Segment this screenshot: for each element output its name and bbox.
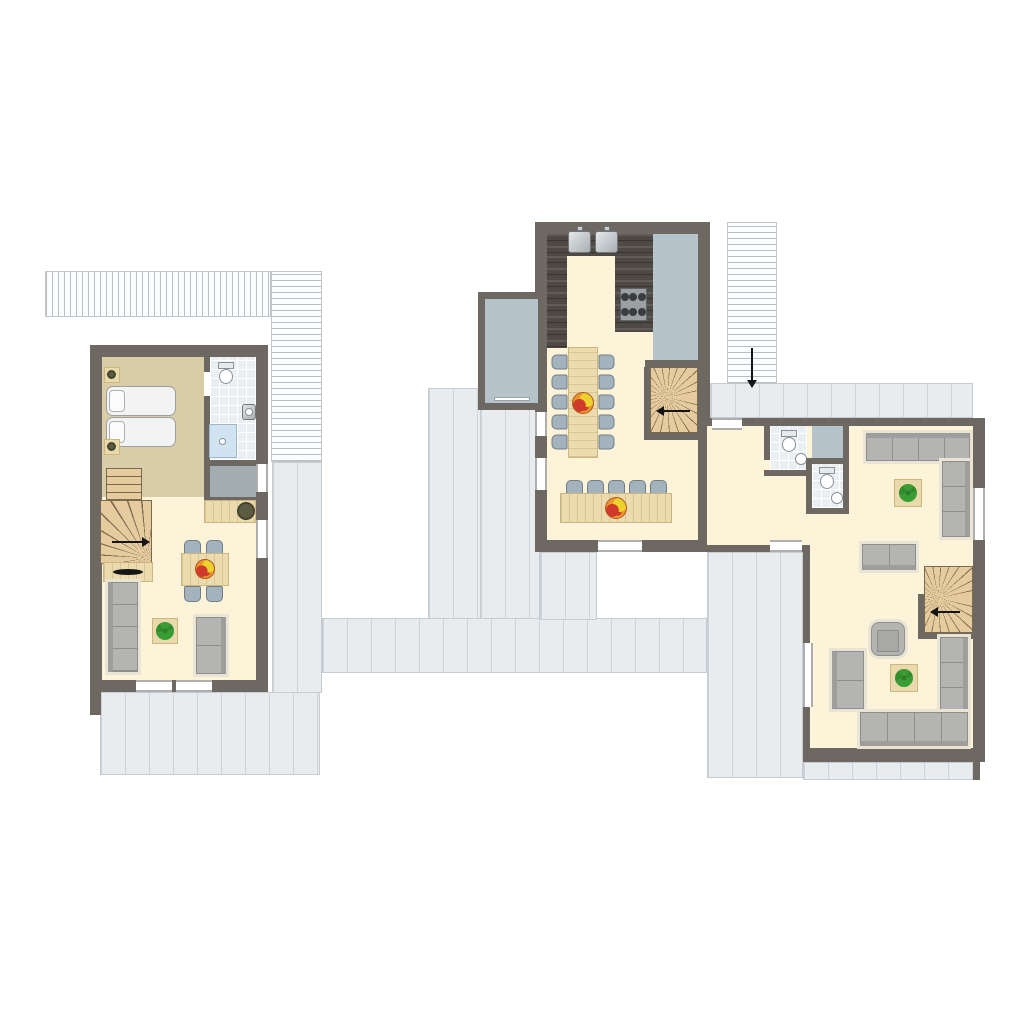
armchair-seat — [877, 630, 899, 652]
burner-icon — [621, 293, 629, 301]
long-table-chair-right — [599, 375, 615, 390]
long-table-chair-right — [599, 355, 615, 370]
floor-plan-canvas — [0, 0, 1024, 1024]
right-unit-winder-stair — [924, 566, 973, 633]
deck-right-column — [707, 552, 803, 778]
void-right-of-kitchen — [653, 234, 698, 366]
middle-unit-left-window-2 — [535, 458, 547, 490]
toilet-tank-left-unit — [218, 362, 234, 369]
walkway-top-left — [45, 271, 271, 317]
hall-top-window — [712, 418, 742, 430]
corner-sofa-top-vertical — [942, 461, 970, 537]
wc2-right-wall — [843, 426, 849, 514]
serving-table-chair — [608, 480, 625, 494]
fruit-bowl-long-table — [572, 392, 594, 414]
middle-unit-patio-door — [598, 540, 642, 552]
wc1-toilet-tank — [781, 430, 797, 437]
dining-chair — [206, 586, 223, 602]
wc2-washbasin — [831, 492, 843, 504]
fruit-bowl-left-unit — [195, 559, 215, 579]
wc2-bottom-wall — [806, 508, 849, 514]
middle-stair-arrow-head — [656, 406, 664, 416]
corner-sofa-top-horizontal — [866, 433, 970, 461]
right-unit-right-window — [973, 488, 985, 540]
stair-left-wall-stub — [644, 367, 650, 440]
bed-pillow-1 — [109, 390, 125, 412]
walkway-top-left-vertical — [271, 271, 322, 462]
plant-lower — [895, 669, 913, 687]
long-table-chair-left — [552, 375, 568, 390]
burner-icon — [629, 293, 637, 301]
middle-stair-arrow-line — [662, 410, 690, 412]
long-table-chair-right — [599, 415, 615, 430]
external-stair-arrow-line — [751, 348, 753, 380]
burner-icon — [629, 308, 637, 316]
wc1-bottom-wall — [764, 470, 812, 476]
wc1-left-wall — [764, 426, 770, 460]
counter-round-unit — [237, 502, 255, 520]
deck-below-right-unit — [803, 762, 978, 780]
serving-table-chair — [629, 480, 646, 494]
deck-left-column — [272, 462, 322, 693]
bathroom-door-gap — [204, 372, 210, 396]
hob-6-burner — [620, 288, 647, 321]
corner-sofa-bottom-vertical — [940, 637, 968, 712]
deck-under-middle-unit — [540, 552, 597, 620]
middle-unit-winder-stair — [650, 367, 698, 433]
burner-icon — [638, 308, 646, 316]
corner-sofa-bottom-horizontal — [860, 712, 968, 746]
kitchen-counter-left — [547, 256, 567, 348]
sofa-2-seat-lower-left — [832, 651, 864, 709]
left-unit-right-window — [256, 520, 268, 558]
plant-upper — [899, 484, 917, 502]
shaft-grey-square — [812, 426, 843, 458]
left-unit-stair-flight — [106, 468, 142, 500]
kitchen-sink-2 — [595, 231, 618, 253]
long-table-chair-left — [552, 415, 568, 430]
hall-bottom-door — [770, 540, 802, 552]
left-unit-patio-door-1 — [136, 680, 172, 692]
external-stair-arrow-head — [747, 380, 757, 388]
loggia-sill — [494, 397, 530, 401]
dining-chair — [184, 586, 201, 602]
right-stair-arrow-head — [930, 607, 938, 617]
deck-middle-column-a — [428, 388, 481, 619]
kitchen-faucet-1 — [577, 226, 583, 231]
serving-table-chair — [566, 480, 583, 494]
loggia-floor — [485, 299, 538, 403]
wc2-toilet-bowl — [820, 474, 834, 489]
sofa-4-seat — [108, 582, 138, 672]
fruit-bowl-serving-table — [605, 497, 627, 519]
entry-door-left-unit — [256, 464, 268, 492]
burner-icon — [638, 293, 646, 301]
left-unit-stair-arrow-line — [112, 541, 142, 543]
deck-middle-column-b — [480, 408, 540, 619]
left-unit-winder-stair — [100, 500, 152, 564]
burner-icon — [621, 308, 629, 316]
right-stair-arrow-line — [936, 611, 960, 613]
sofa-2-seat-mid — [862, 544, 916, 570]
middle-unit-left-window-1 — [535, 412, 547, 436]
void-bottom-wall — [645, 360, 710, 367]
nightstand-lamp-bottom — [107, 442, 116, 451]
deck-bottom-run — [322, 618, 707, 673]
toilet-bowl-left-unit — [219, 369, 233, 384]
right-unit-wall-stub — [973, 762, 980, 780]
deck-below-left-unit — [100, 692, 320, 775]
tv-icon — [113, 569, 143, 575]
serving-table-chair — [650, 480, 667, 494]
plant-left-unit — [156, 622, 174, 640]
shower-head-icon — [219, 438, 226, 445]
left-unit-wall-stub — [90, 692, 101, 715]
left-unit-patio-door-2 — [176, 680, 212, 692]
wc2-left-wall — [806, 458, 812, 514]
sofa-2-seat-left-unit — [196, 617, 226, 674]
long-table-chair-right — [599, 435, 615, 450]
wc1-toilet-bowl — [782, 437, 796, 452]
bathroom-washbasin-bowl — [245, 408, 253, 416]
nightstand-lamp-top — [107, 370, 116, 379]
right-unit-left-window-lower — [803, 643, 813, 707]
serving-table-chair — [587, 480, 604, 494]
long-table-chair-left — [552, 355, 568, 370]
kitchen-faucet-2 — [604, 226, 610, 231]
wc2-toilet-tank — [819, 467, 835, 474]
vestibule-floor — [210, 466, 256, 497]
long-table-chair-left — [552, 435, 568, 450]
long-table-chair-left — [552, 395, 568, 410]
deck-top-right-strip — [710, 383, 973, 418]
left-unit-stair-arrow-head — [142, 537, 150, 547]
kitchen-sink-1 — [568, 231, 591, 253]
long-table-chair-right — [599, 395, 615, 410]
